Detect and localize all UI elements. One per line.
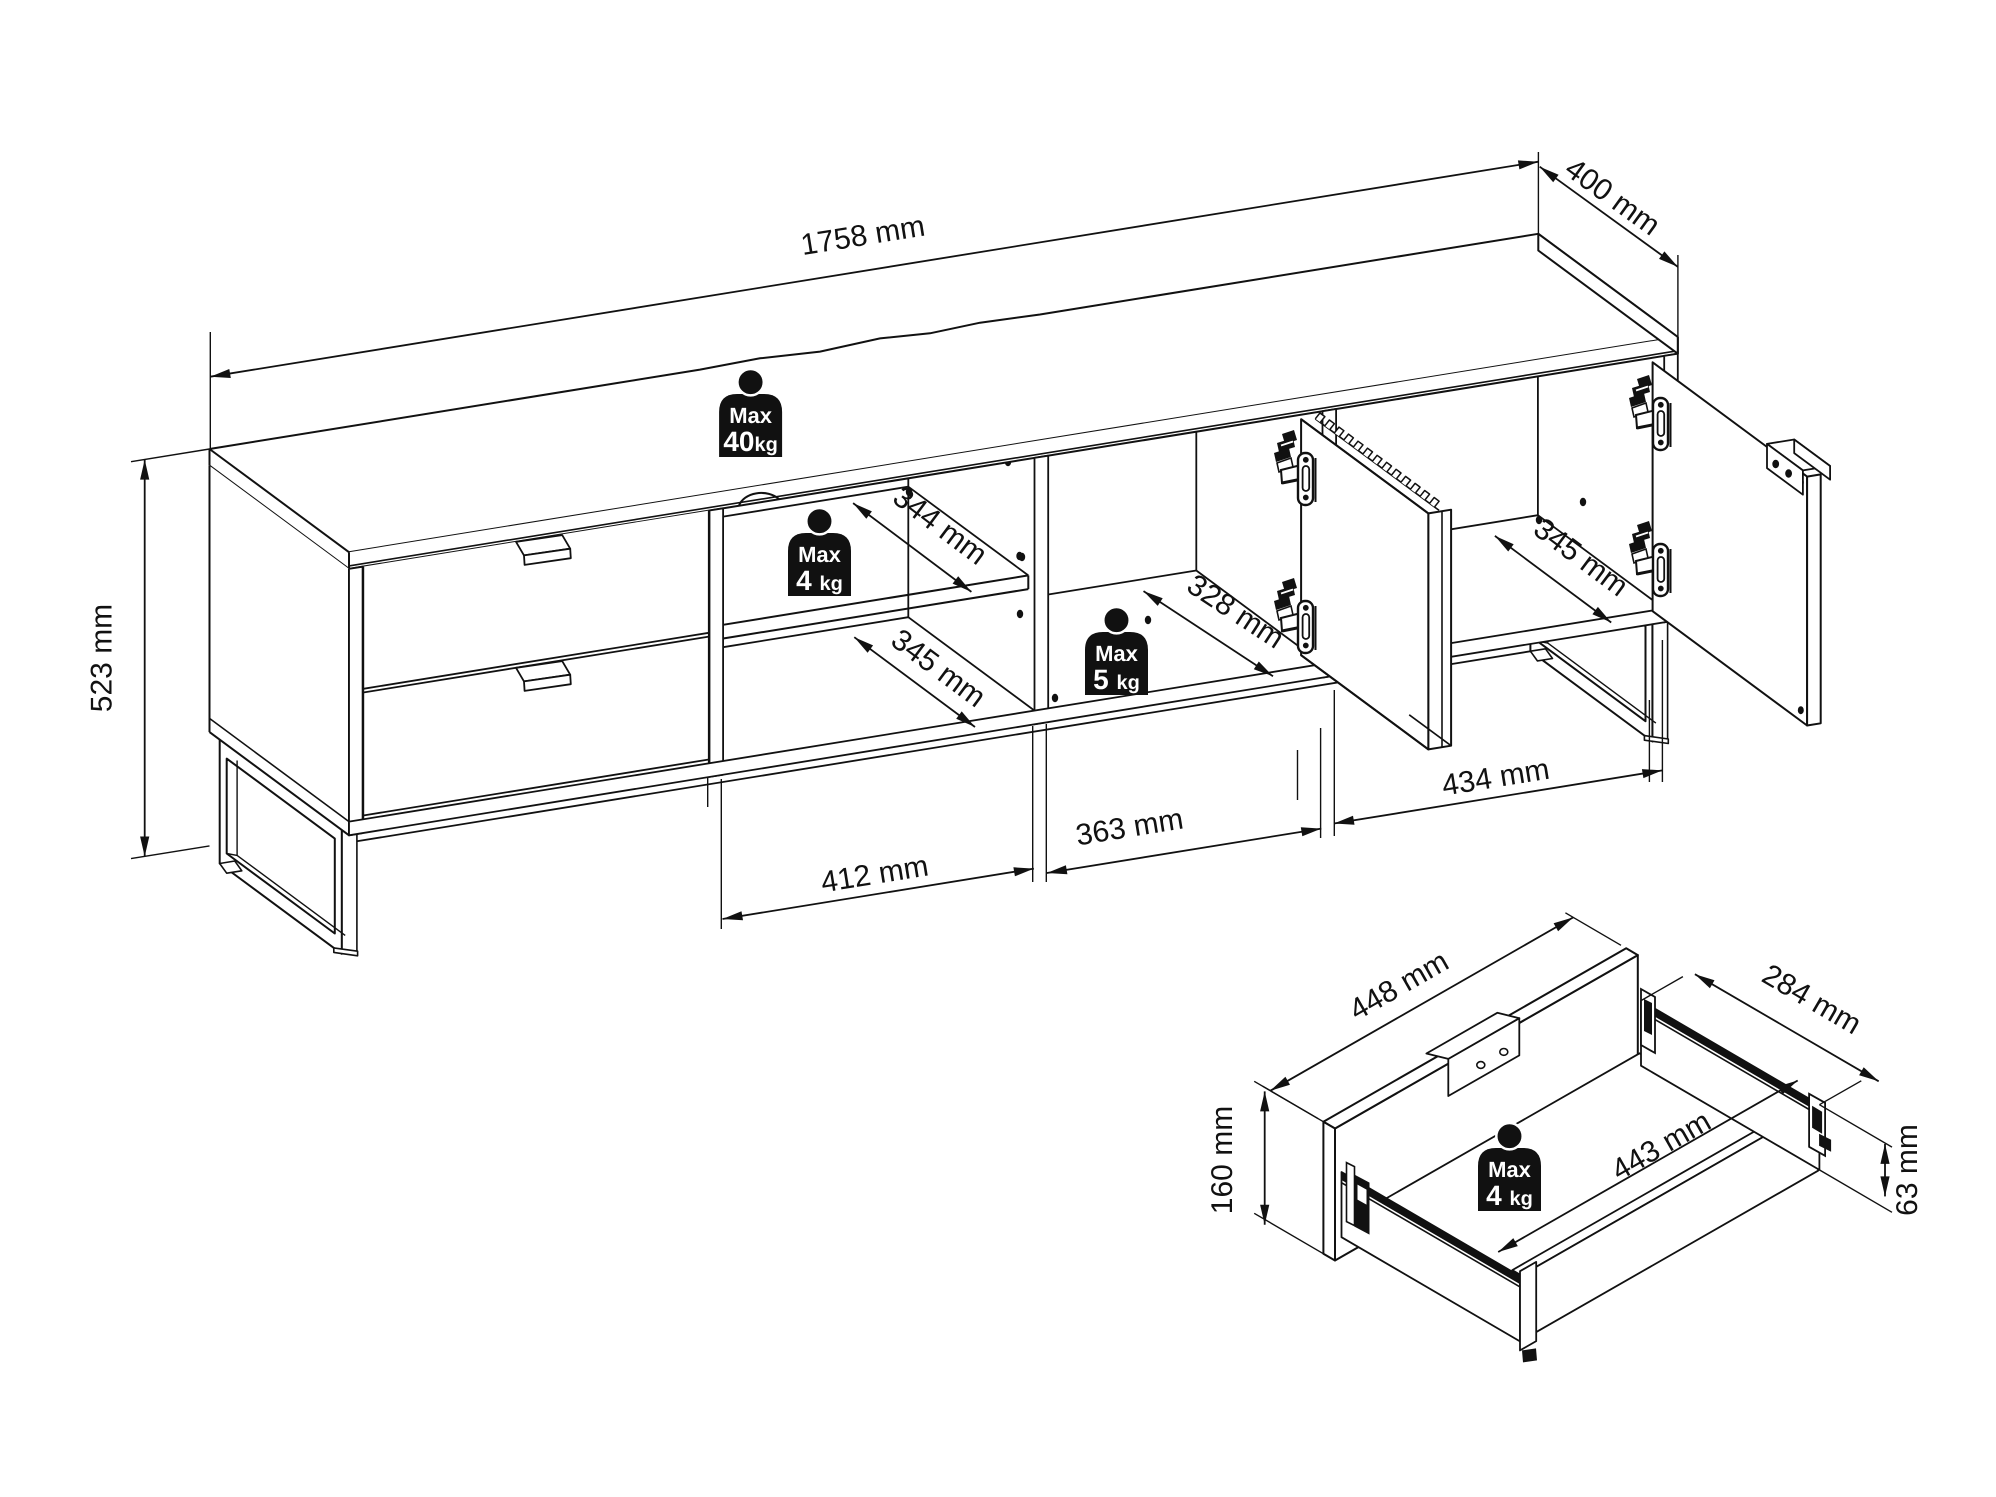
- svg-text:523 mm: 523 mm: [86, 604, 119, 712]
- svg-text:Max: Max: [1488, 1157, 1532, 1182]
- svg-text:Max: Max: [798, 542, 842, 567]
- svg-text:160 mm: 160 mm: [1206, 1106, 1239, 1214]
- svg-text:63 mm: 63 mm: [1891, 1124, 1924, 1216]
- svg-text:Max: Max: [1095, 641, 1139, 666]
- svg-text:Max: Max: [729, 403, 773, 428]
